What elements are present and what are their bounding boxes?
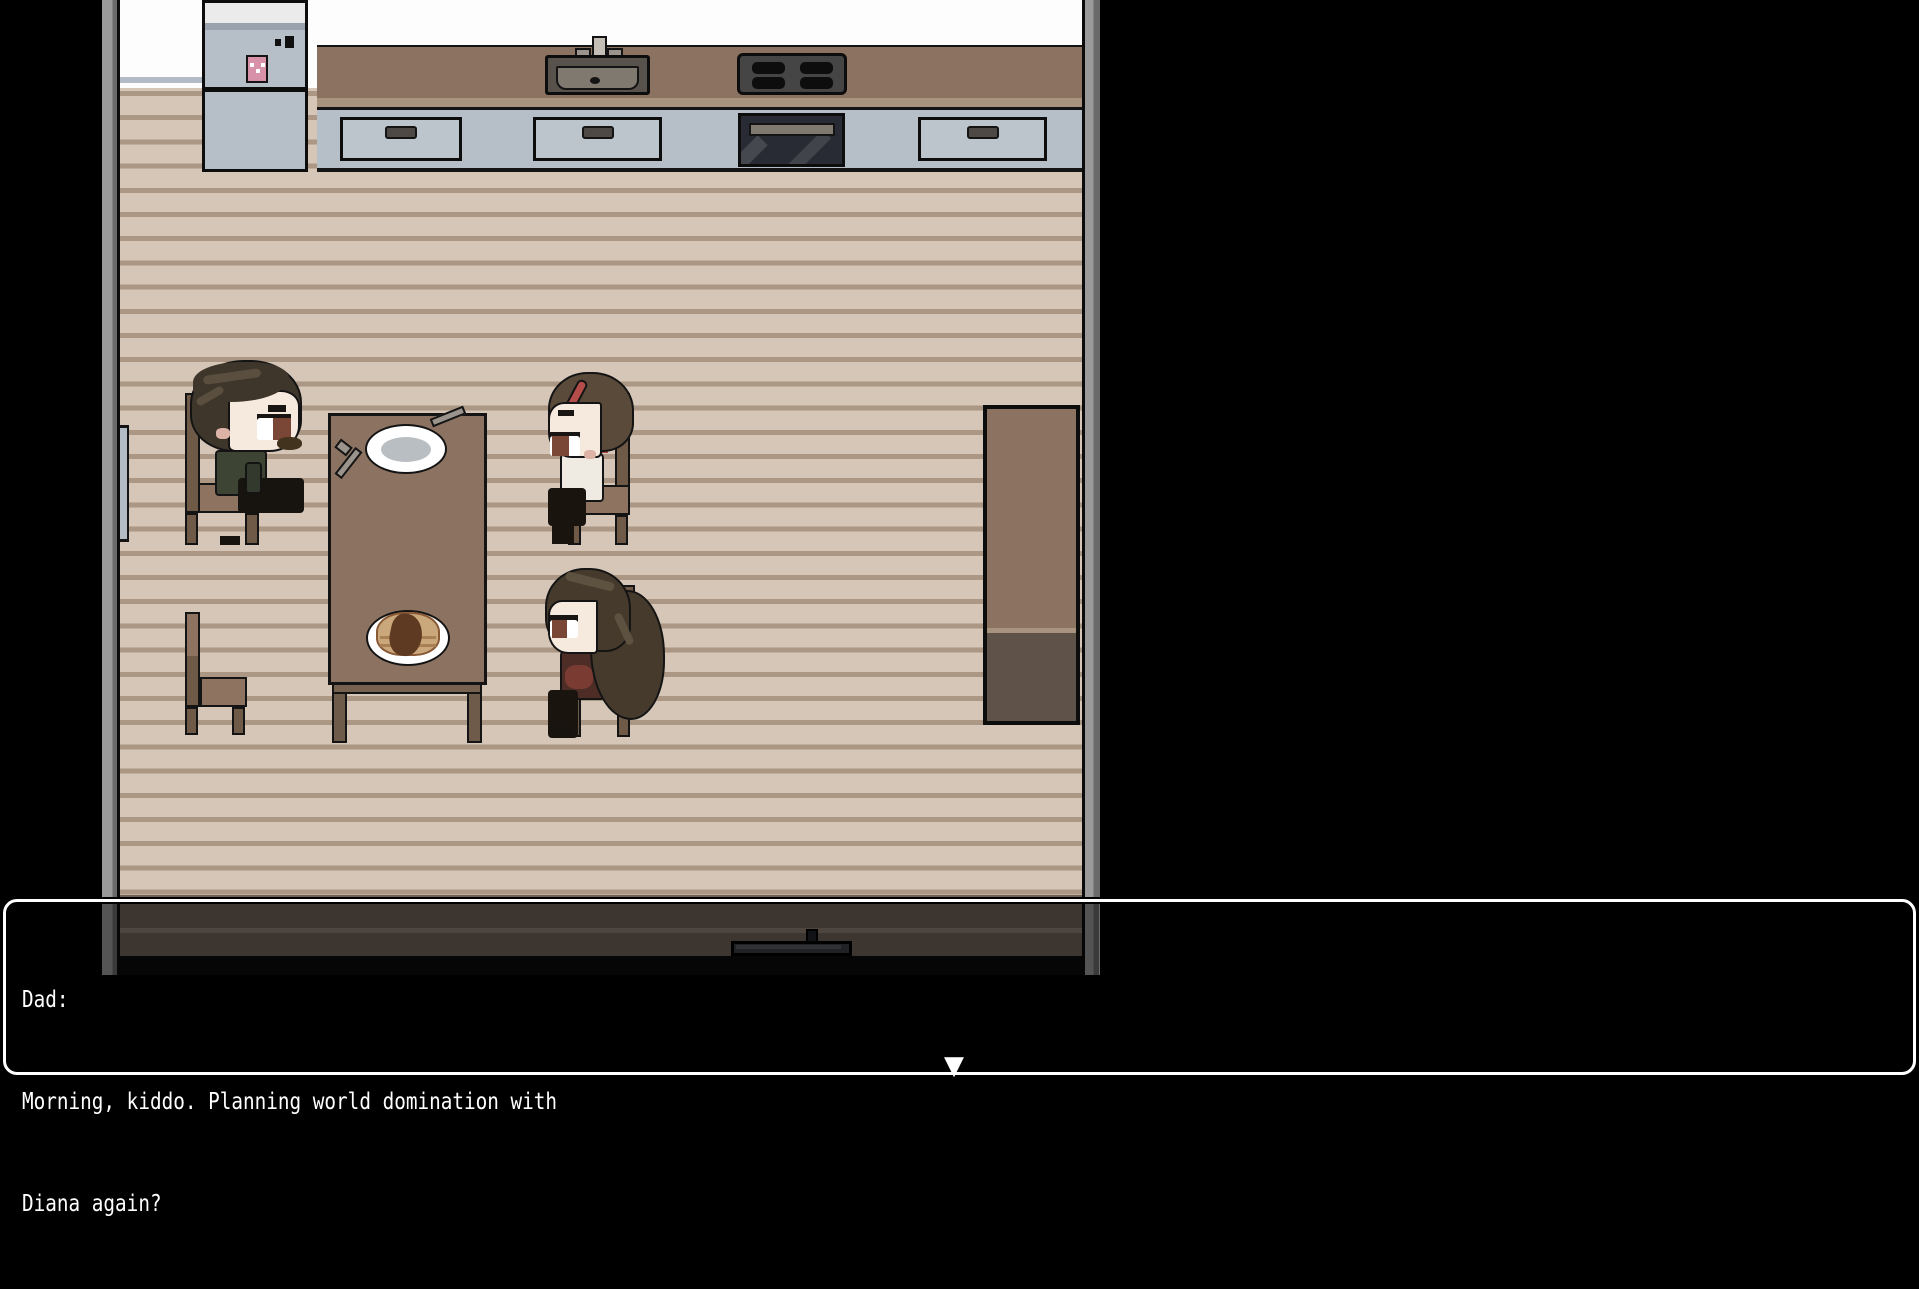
mom-eyebrow	[558, 410, 574, 416]
drawer-handle	[582, 126, 614, 139]
viewport-border-left	[102, 0, 117, 975]
character-dad	[185, 360, 307, 550]
magnet-dot	[256, 69, 260, 73]
dad-feet	[220, 536, 240, 545]
dad-ear	[216, 428, 230, 439]
chair-leg	[615, 515, 628, 545]
burner	[800, 77, 833, 89]
daughter-feet	[550, 727, 570, 737]
dialogue-line: Diana again?	[22, 1187, 557, 1221]
chair-back-highlight	[187, 614, 198, 656]
chair-leg	[232, 707, 245, 735]
oven-door	[738, 113, 845, 167]
chair-leg	[185, 513, 198, 545]
cabinet-bottom-line	[317, 168, 1082, 172]
wall-edge-right	[1082, 0, 1085, 975]
fridge-top	[205, 3, 305, 23]
fridge-handle-small	[275, 39, 281, 46]
dad-arm	[245, 462, 262, 494]
sink-drain	[590, 77, 600, 84]
drawer-handle	[967, 126, 999, 139]
magnet-dot	[261, 63, 265, 67]
drawer	[918, 117, 1047, 161]
refrigerator	[202, 0, 308, 172]
game-viewport[interactable]	[102, 0, 1099, 975]
chair-leg	[185, 707, 198, 735]
oven-glass-shine	[738, 135, 768, 167]
dialogue-text: Dad: Morning, kiddo. Planning world domi…	[22, 915, 557, 1289]
fridge-handle	[285, 36, 294, 48]
kitchen-counter	[317, 45, 1082, 110]
counter-surface	[317, 47, 1082, 98]
character-mom	[548, 368, 654, 558]
plate-center	[381, 437, 431, 462]
continue-indicator[interactable]: ▼	[944, 1051, 964, 1081]
oven-handle-bar	[749, 123, 835, 136]
burner	[752, 77, 785, 89]
counter-front-edge	[317, 98, 1082, 107]
daughter-scarf	[565, 665, 593, 689]
burner	[752, 62, 785, 74]
fridge-door-divider	[205, 87, 305, 92]
drawer	[533, 117, 662, 161]
mom-blush	[584, 450, 596, 459]
dad-mustache	[277, 437, 302, 450]
mom-iris	[552, 436, 569, 456]
fridge-top-trim	[205, 23, 305, 30]
top-wall	[317, 0, 1082, 45]
drawer	[340, 117, 462, 161]
burner	[800, 62, 833, 74]
dialogue-line: Morning, kiddo. Planning world dominatio…	[22, 1085, 557, 1119]
viewport-border-right	[1085, 0, 1100, 975]
fridge-magnet	[246, 55, 268, 83]
chair-seat	[200, 677, 247, 707]
side-cabinet-lower	[987, 633, 1076, 721]
mom-shin	[552, 518, 574, 544]
drawer-handle	[385, 126, 417, 139]
empty-chair	[185, 612, 247, 735]
kitchen-room	[120, 0, 1082, 975]
screenshot-root: { "dialogue": { "speaker": "Dad:", "line…	[0, 0, 1919, 1079]
character-daughter	[545, 565, 665, 740]
stove-cooktop	[737, 51, 847, 95]
chair-back	[185, 612, 200, 707]
window-sill	[120, 77, 204, 83]
dad-eyebrow	[268, 405, 286, 412]
daughter-iris	[552, 620, 567, 638]
dialogue-speaker: Dad:	[22, 983, 557, 1017]
chair-leg	[245, 513, 259, 545]
magnet-dot	[250, 63, 254, 67]
dialogue-window[interactable]: Dad: Morning, kiddo. Planning world domi…	[3, 899, 1916, 1075]
sink	[545, 36, 650, 95]
wall-fixture	[120, 425, 129, 542]
dinner-plate	[365, 424, 447, 474]
side-cabinet	[983, 405, 1080, 725]
dining-table	[328, 410, 488, 745]
stove-body	[737, 53, 847, 95]
